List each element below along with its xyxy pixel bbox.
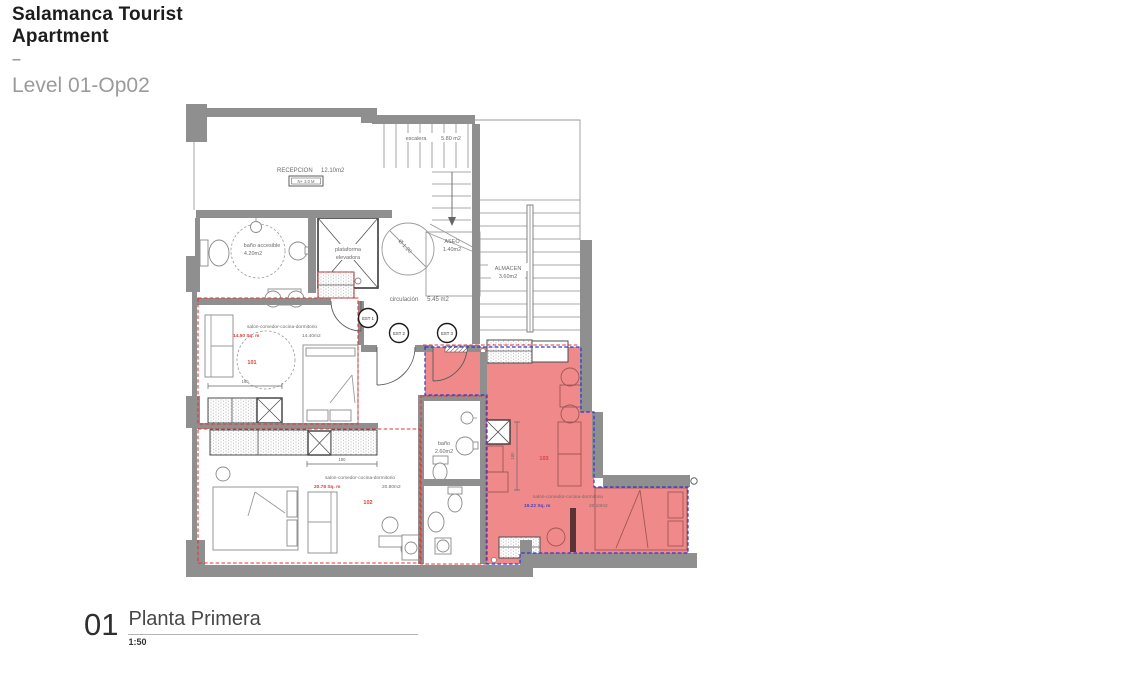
apartment-102-furniture [210, 430, 420, 560]
toilet-bano-bowl [433, 463, 447, 481]
drawing-scale: 1:50 [128, 637, 418, 647]
label-101-use: salon-comedor-cocina-dormitorio [247, 324, 317, 330]
label-circulacion: circulación [390, 297, 418, 303]
label-recepcion-area: 12.10m2 [321, 168, 345, 174]
label-turning-diameter: Ø 1.20 [397, 239, 413, 255]
dim-103: 180 [510, 452, 515, 460]
label-103-area: 20.10m2 [589, 503, 608, 509]
apartment-103-highlight [425, 347, 688, 564]
drawing-number: 01 [84, 608, 118, 642]
door-arc-est1 [331, 301, 361, 331]
label-level-tag: N+ 3.0 M [297, 179, 315, 184]
kitchen-counter-102 [210, 430, 308, 455]
label-plataforma-l1: plataforma [335, 247, 362, 253]
bed-102 [213, 487, 298, 550]
apartment-101-furniture [205, 289, 358, 425]
label-bano: baño [438, 441, 450, 447]
label-escalera: escalera [406, 136, 428, 142]
kitchen-counter-103-top [487, 340, 532, 363]
label-circulacion-area: 5.45 m2 [427, 297, 449, 303]
door-arc-est2 [377, 347, 415, 385]
label-aseo-area: 1.40m2 [443, 247, 461, 253]
sink-bano-b [456, 437, 474, 455]
kitchen-counter-101 [208, 398, 257, 423]
sink-lower [428, 512, 444, 532]
desk-103 [570, 508, 576, 552]
desk-102 [379, 536, 402, 547]
label-escalera-area: 5.80 m2 [441, 136, 461, 142]
sofa-102 [308, 492, 337, 553]
chair-102-a [382, 517, 398, 533]
toilet-tank [200, 240, 208, 266]
toilet-lower-bowl [448, 494, 462, 512]
sink-icon [251, 222, 262, 233]
drawing-name: Planta Primera [128, 608, 418, 635]
label-102-area: 20.80m2 [382, 484, 401, 490]
sink-bano-a [461, 412, 473, 424]
label-102-use: salon-comedor-cocina-dormitorio [325, 475, 395, 481]
toilet-lower-tank [448, 487, 462, 494]
label-bano-area: 2.60m2 [435, 449, 453, 455]
fridge-103 [532, 341, 568, 362]
est2-label: EST 2 [393, 331, 405, 336]
label-102-sqm: 20.78 Sq. m [314, 484, 340, 490]
stairs [384, 120, 580, 344]
dim-102: 180 [339, 457, 347, 462]
washbasin-icon [289, 242, 307, 260]
label-almacen: ALMACEN [495, 266, 522, 272]
lamp-102 [216, 467, 230, 481]
floor-plan-svg: RECEPCION 12.10m2 N+ 3.0 M escalera 5.80… [0, 0, 1137, 700]
label-101-number: 101 [247, 360, 256, 366]
label-101-sqm: 14.50 Sq. m [233, 333, 259, 339]
label-101-area: 14.40m2 [302, 333, 321, 339]
label-plataforma-l2: elevadora [336, 255, 361, 261]
label-103-use: salon-comedor-cocina-dormitorio [533, 494, 603, 500]
label-aseo: ASEO [444, 239, 460, 245]
entry-markers: EST 1 EST 2 EST 3 [359, 309, 457, 343]
label-103-number: 103 [539, 456, 548, 462]
est3-label: EST 3 [441, 331, 453, 336]
est1-label: EST 1 [362, 316, 374, 321]
label-103-sqm: 19.22 Sq. m [524, 503, 550, 509]
label-bano-accesible: baño accesible [244, 243, 281, 249]
label-recepcion: RECEPCION [277, 168, 313, 174]
drawing-title-block: 01 Planta Primera 1:50 [84, 608, 418, 647]
label-bano-accesible-area: 4.20m2 [244, 251, 262, 257]
dim-101: 180 [242, 379, 250, 384]
label-almacen-area: 3.60m2 [499, 274, 517, 280]
label-102-number: 102 [363, 500, 372, 506]
toilet-icon [209, 240, 229, 266]
